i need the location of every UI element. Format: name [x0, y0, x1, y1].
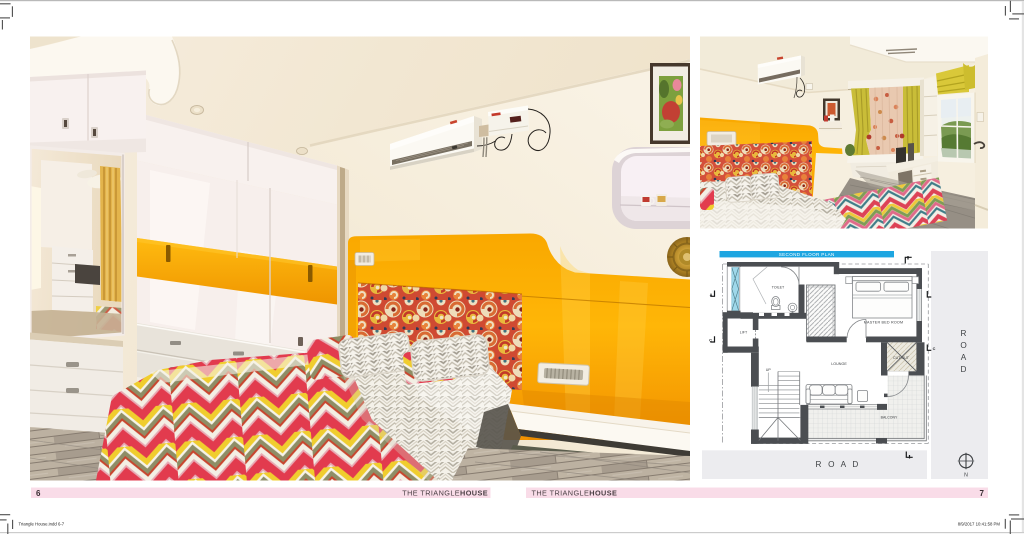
svg-text:MASTER BED ROOM: MASTER BED ROOM — [864, 321, 903, 325]
svg-text:LOUNGE: LOUNGE — [831, 362, 847, 366]
svg-text:A: A — [961, 353, 967, 362]
svg-text:O: O — [960, 341, 966, 350]
svg-text:6: 6 — [36, 489, 41, 498]
svg-text:THE TRIANGLEHOUSE: THE TRIANGLEHOUSE — [402, 489, 488, 498]
svg-text:SECOND FLOOR PLAN: SECOND FLOOR PLAN — [779, 252, 835, 257]
svg-text:C: C — [933, 347, 936, 351]
svg-text:LIFT: LIFT — [740, 331, 748, 335]
svg-text:BALCONY: BALCONY — [881, 415, 898, 419]
svg-text:D: D — [961, 365, 967, 374]
svg-text:8/9/2017 10:41:58 PM: 8/9/2017 10:41:58 PM — [958, 522, 1001, 527]
svg-text:UP: UP — [766, 368, 772, 372]
svg-text:Triangle House.indd 6-7: Triangle House.indd 6-7 — [19, 522, 65, 527]
svg-text:N: N — [964, 473, 968, 479]
svg-text:TOILET: TOILET — [772, 286, 785, 290]
svg-text:THE TRIANGLEHOUSE: THE TRIANGLEHOUSE — [532, 489, 618, 498]
svg-text:R O A D: R O A D — [816, 460, 861, 469]
svg-text:CUT OUT: CUT OUT — [893, 356, 910, 360]
svg-text:7: 7 — [980, 489, 985, 498]
svg-text:R: R — [961, 329, 967, 338]
